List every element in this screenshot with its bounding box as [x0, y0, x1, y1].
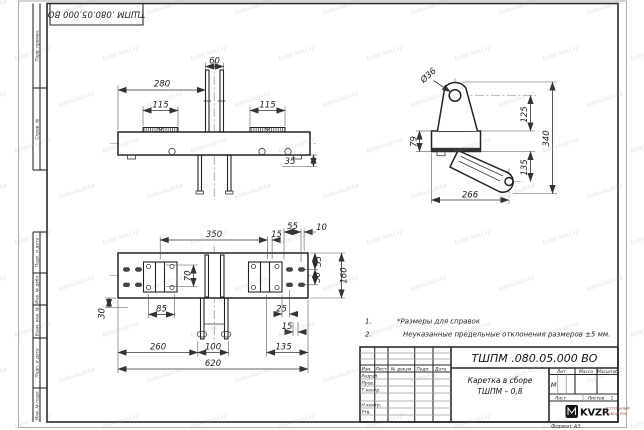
col-ndoc: № докум. [390, 367, 413, 373]
massa-label: Масса [579, 369, 593, 375]
dim-side-266: 266 [462, 191, 479, 201]
dim-top-55-right: 55 [314, 256, 324, 267]
masshtab-label: Масштаб [597, 369, 618, 375]
row-nkontr: Н.контр. [362, 403, 382, 409]
col-podp: Подп. [417, 367, 430, 373]
dim-front-115-left: 115 [152, 101, 168, 111]
dim-top-70: 70 [184, 270, 194, 281]
dim-side-135: 135 [520, 159, 530, 175]
margin-label-perv-primen: Перв. примен. [35, 29, 41, 61]
dim-top-55-top: 55 [287, 222, 298, 232]
dim-top-10: 10 [316, 223, 327, 233]
margin-label-podp-data-1: Подп. и дата [34, 238, 40, 268]
note-2-text: Неуказанные предельные отклонения размер… [403, 331, 610, 339]
drawing-canvas: ТШПМ .080.05.000 ВО Перв. примен. Справ.… [0, 0, 644, 430]
dim-front-35: 35 [285, 157, 296, 167]
margin-label-inv-dubl: Инв. № дубл. [35, 274, 41, 303]
kvzr-tagline-2: ЗАВОД РЭУ [606, 412, 628, 416]
drawing-sheet: ТШПМ .080.05.000 ВО Перв. примен. Справ.… [0, 0, 644, 430]
front-view: 280 60 115 115 35 [110, 57, 318, 201]
dim-top-620: 620 [205, 359, 221, 369]
dim-side-dia36: Ø36 [418, 65, 440, 86]
margin-labels: ТШПМ .080.05.000 ВО Перв. примен. Справ.… [34, 9, 145, 420]
dim-front-115-right: 115 [259, 101, 275, 111]
kvzr-logo: KVZR КОТЕЛЬНЫЙ ЗАВОД РЭУ [566, 405, 630, 419]
title-doc-number: ТШПМ .080.05.000 ВО [472, 352, 598, 365]
dim-top-30: 30 [98, 308, 108, 319]
kvzr-tagline-1: КОТЕЛЬНЫЙ [606, 406, 630, 411]
col-data: Дата [434, 367, 447, 373]
row-utv: Утв. [362, 410, 371, 416]
title-block: ТШПМ .080.05.000 ВО Каретка в сборе ТШПМ… [360, 347, 630, 430]
dim-side-79: 79 [410, 136, 420, 147]
note-1-number: 1. [365, 318, 372, 326]
lit-label: Лит. [556, 369, 567, 375]
note-2-number: 2. [365, 331, 372, 339]
margin-label-sprav-no: Справ. № [34, 118, 40, 139]
dim-top-160: 160 [340, 267, 350, 283]
dim-top-350: 350 [206, 230, 222, 240]
col-izm: Изм. [362, 367, 372, 373]
row-prov: Пров. [362, 381, 375, 387]
side-view: Ø36 125 135 340 79 266 [410, 65, 558, 204]
margin-label-vzam-inv: Взам. инв. № [35, 306, 41, 336]
margin-label-inv-podl: Инв. № подл. [35, 390, 41, 420]
dim-side-340: 340 [542, 130, 552, 146]
dim-top-15-upper: 15 [271, 230, 282, 240]
dim-top-50-right: 50 [313, 272, 323, 283]
col-list: Лист [375, 367, 388, 373]
top-view: 350 15 55 10 55 50 160 70 85 30 [98, 222, 350, 373]
lever-arm [450, 151, 513, 193]
dim-top-100: 100 [205, 343, 221, 353]
kvzr-logo-mark [566, 405, 579, 418]
dim-front-280: 280 [154, 80, 170, 90]
dim-top-85: 85 [156, 305, 167, 315]
dim-side-125: 125 [520, 106, 530, 122]
technical-notes: 1. *Размеры для справок 2. Неуказанные п… [365, 318, 610, 339]
dim-top-25: 25 [276, 305, 287, 315]
dim-front-60: 60 [209, 57, 220, 67]
row-razrab: Разраб. [362, 374, 379, 380]
row-tkontr: Т.контр. [362, 388, 381, 394]
dim-top-135: 135 [275, 343, 291, 353]
lit-value: М [551, 381, 557, 389]
format-label: Формат А3 [551, 424, 581, 430]
title-name-line2: ТШПМ – 0,8 [477, 387, 522, 396]
listov-value: 1 [611, 395, 614, 401]
margin-label-podp-data-2: Подп. и дата [35, 348, 41, 378]
listov-label: Листов [587, 395, 605, 401]
dim-top-15-lower: 15 [282, 322, 293, 332]
list-label: Лист [554, 395, 567, 401]
doc-number-stamp: ТШПМ .080.05.000 ВО [48, 9, 146, 19]
title-name-line1: Каретка в сборе [468, 376, 533, 385]
note-1-text: *Размеры для справок [397, 318, 481, 326]
dim-top-260: 260 [150, 343, 166, 353]
